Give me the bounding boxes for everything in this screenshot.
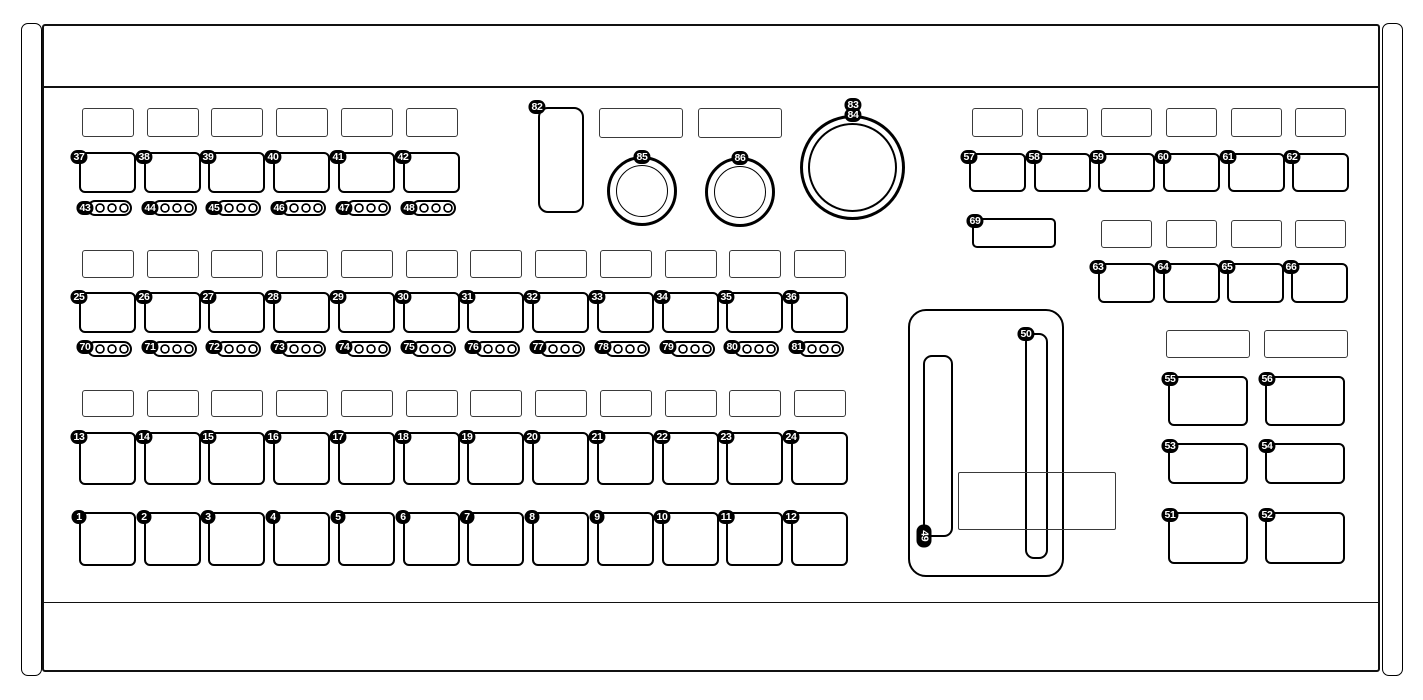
- top-edge-divider: [44, 86, 1378, 88]
- label-window: [470, 390, 522, 417]
- led-indicator-72: [216, 341, 261, 357]
- callout-badge-54: 54: [1258, 439, 1275, 453]
- led-indicator-75: [411, 341, 456, 357]
- bottom-edge-divider: [44, 602, 1378, 603]
- callout-badge-75: 75: [400, 340, 417, 354]
- pad-24: [791, 432, 848, 485]
- button-61: [1228, 153, 1285, 192]
- button-54: [1265, 443, 1345, 484]
- callout-badge-60: 60: [1154, 150, 1171, 164]
- callout-badge-86: 86: [731, 151, 748, 165]
- jog-wheel-83-84: [800, 115, 905, 220]
- led-indicator-43: [87, 200, 132, 216]
- pad-21: [597, 432, 654, 485]
- pad-12: [791, 512, 848, 566]
- callout-badge-15: 15: [199, 430, 216, 444]
- label-window: [1231, 108, 1282, 137]
- label-window: [729, 390, 781, 417]
- button-40: [273, 152, 330, 193]
- callout-badge-84: 84: [844, 108, 861, 122]
- pad-15: [208, 432, 265, 485]
- button-57: [969, 153, 1026, 192]
- callout-badge-7: 7: [460, 510, 475, 524]
- callout-badge-70: 70: [76, 340, 93, 354]
- callout-badge-1: 1: [72, 510, 87, 524]
- button-30: [403, 292, 460, 333]
- button-39: [208, 152, 265, 193]
- label-window: [535, 250, 587, 278]
- label-window: [972, 108, 1023, 137]
- button-41: [338, 152, 395, 193]
- callout-badge-57: 57: [960, 150, 977, 164]
- callout-badge-11: 11: [718, 510, 735, 524]
- callout-badge-50: 50: [1017, 327, 1034, 341]
- button-64: [1163, 263, 1220, 303]
- button-26: [144, 292, 201, 333]
- pad-1: [79, 512, 136, 566]
- callout-badge-31: 31: [458, 290, 475, 304]
- button-65: [1227, 263, 1284, 303]
- callout-badge-28: 28: [264, 290, 281, 304]
- pad-23: [726, 432, 783, 485]
- button-59: [1098, 153, 1155, 192]
- button-25: [79, 292, 136, 333]
- label-window: [794, 250, 846, 278]
- led-indicator-78: [605, 341, 650, 357]
- pad-9: [597, 512, 654, 566]
- callout-badge-58: 58: [1025, 150, 1042, 164]
- label-window: [1295, 108, 1346, 137]
- button-32: [532, 292, 589, 333]
- label-window: [211, 390, 263, 417]
- label-window: [1295, 220, 1346, 248]
- callout-badge-74: 74: [335, 340, 352, 354]
- callout-badge-72: 72: [205, 340, 222, 354]
- callout-badge-25: 25: [70, 290, 87, 304]
- callout-badge-80: 80: [723, 340, 740, 354]
- callout-badge-4: 4: [266, 510, 281, 524]
- label-window: [82, 108, 134, 137]
- callout-badge-9: 9: [590, 510, 605, 524]
- callout-badge-49: 49: [917, 525, 932, 548]
- label-window: [1101, 220, 1152, 248]
- button-60: [1163, 153, 1220, 192]
- callout-badge-65: 65: [1218, 260, 1235, 274]
- button-66: [1291, 263, 1348, 303]
- label-window: [147, 390, 199, 417]
- pad-19: [467, 432, 524, 485]
- callout-badge-62: 62: [1283, 150, 1300, 164]
- button-69: [972, 218, 1056, 248]
- label-window: [276, 390, 328, 417]
- callout-badge-82: 82: [528, 100, 545, 114]
- callout-badge-64: 64: [1154, 260, 1171, 274]
- led-indicator-44: [152, 200, 197, 216]
- label-window: [341, 390, 393, 417]
- label-window: [276, 250, 328, 278]
- label-window: [82, 390, 134, 417]
- button-27: [208, 292, 265, 333]
- callout-badge-53: 53: [1161, 439, 1178, 453]
- callout-badge-44: 44: [141, 201, 158, 215]
- button-35: [726, 292, 783, 333]
- callout-badge-56: 56: [1258, 372, 1275, 386]
- display-window: [599, 108, 683, 138]
- callout-badge-47: 47: [335, 201, 352, 215]
- pad-20: [532, 432, 589, 485]
- button-36: [791, 292, 848, 333]
- fader-overlay-window: [958, 472, 1116, 530]
- callout-badge-63: 63: [1089, 260, 1106, 274]
- led-indicator-47: [346, 200, 391, 216]
- led-indicator-80: [734, 341, 779, 357]
- led-indicator-73: [281, 341, 326, 357]
- callout-badge-10: 10: [653, 510, 670, 524]
- diagram-stage: 37 38 39 40 41 42 43 44 45 46 47 48 82 8…: [0, 0, 1423, 700]
- callout-badge-42: 42: [394, 150, 411, 164]
- callout-badge-22: 22: [653, 430, 670, 444]
- callout-badge-21: 21: [588, 430, 605, 444]
- button-58: [1034, 153, 1091, 192]
- callout-badge-12: 12: [782, 510, 799, 524]
- callout-badge-33: 33: [588, 290, 605, 304]
- callout-badge-30: 30: [394, 290, 411, 304]
- knob-86: [705, 157, 775, 227]
- button-34: [662, 292, 719, 333]
- pad-2: [144, 512, 201, 566]
- label-window: [1264, 330, 1348, 358]
- led-indicator-71: [152, 341, 197, 357]
- callout-badge-85: 85: [633, 150, 650, 164]
- pad-5: [338, 512, 395, 566]
- label-window: [665, 250, 717, 278]
- button-63: [1098, 263, 1155, 303]
- led-indicator-77: [540, 341, 585, 357]
- fader-slot-49: [923, 355, 953, 537]
- callout-badge-79: 79: [659, 340, 676, 354]
- callout-badge-69: 69: [966, 214, 983, 228]
- callout-badge-76: 76: [464, 340, 481, 354]
- pad-14: [144, 432, 201, 485]
- button-56: [1265, 376, 1345, 426]
- callout-badge-48: 48: [400, 201, 417, 215]
- callout-badge-59: 59: [1089, 150, 1106, 164]
- label-window: [147, 108, 199, 137]
- label-window: [341, 250, 393, 278]
- button-29: [338, 292, 395, 333]
- callout-badge-73: 73: [270, 340, 287, 354]
- button-33: [597, 292, 654, 333]
- label-window: [406, 390, 458, 417]
- button-55: [1168, 376, 1248, 426]
- button-62: [1292, 153, 1349, 192]
- callout-badge-23: 23: [717, 430, 734, 444]
- pad-7: [467, 512, 524, 566]
- callout-badge-55: 55: [1161, 372, 1178, 386]
- label-window: [1101, 108, 1152, 137]
- chassis-right-cap: [1382, 23, 1403, 676]
- led-indicator-48: [411, 200, 456, 216]
- callout-badge-61: 61: [1219, 150, 1236, 164]
- touch-strip-82: [538, 107, 584, 213]
- led-indicator-76: [475, 341, 520, 357]
- led-indicator-45: [216, 200, 261, 216]
- label-window: [147, 250, 199, 278]
- callout-badge-36: 36: [782, 290, 799, 304]
- label-window: [794, 390, 846, 417]
- callout-badge-81: 81: [788, 340, 805, 354]
- button-52: [1265, 512, 1345, 564]
- callout-badge-17: 17: [329, 430, 346, 444]
- label-window: [1166, 220, 1217, 248]
- callout-badge-46: 46: [270, 201, 287, 215]
- callout-badge-5: 5: [331, 510, 346, 524]
- callout-badge-2: 2: [137, 510, 152, 524]
- led-indicator-79: [670, 341, 715, 357]
- button-53: [1168, 443, 1248, 484]
- callout-badge-39: 39: [199, 150, 216, 164]
- label-window: [729, 250, 781, 278]
- callout-badge-27: 27: [199, 290, 216, 304]
- pad-6: [403, 512, 460, 566]
- led-indicator-74: [346, 341, 391, 357]
- pad-4: [273, 512, 330, 566]
- button-37: [79, 152, 136, 193]
- callout-badge-52: 52: [1258, 508, 1275, 522]
- label-window: [1231, 220, 1282, 248]
- callout-badge-78: 78: [594, 340, 611, 354]
- callout-badge-13: 13: [70, 430, 87, 444]
- label-window: [535, 390, 587, 417]
- label-window: [276, 108, 328, 137]
- label-window: [1166, 108, 1217, 137]
- callout-badge-71: 71: [141, 340, 158, 354]
- led-indicator-46: [281, 200, 326, 216]
- label-window: [470, 250, 522, 278]
- label-window: [600, 250, 652, 278]
- pad-8: [532, 512, 589, 566]
- button-42: [403, 152, 460, 193]
- label-window: [665, 390, 717, 417]
- pad-10: [662, 512, 719, 566]
- label-window: [406, 250, 458, 278]
- led-indicator-81: [799, 341, 844, 357]
- label-window: [211, 250, 263, 278]
- pad-13: [79, 432, 136, 485]
- callout-badge-24: 24: [782, 430, 799, 444]
- label-window: [1037, 108, 1088, 137]
- callout-badge-18: 18: [394, 430, 411, 444]
- callout-badge-35: 35: [717, 290, 734, 304]
- callout-badge-40: 40: [264, 150, 281, 164]
- callout-badge-38: 38: [135, 150, 152, 164]
- pad-11: [726, 512, 783, 566]
- callout-badge-41: 41: [329, 150, 346, 164]
- button-31: [467, 292, 524, 333]
- callout-badge-26: 26: [135, 290, 152, 304]
- label-window: [1166, 330, 1250, 358]
- chassis-left-cap: [21, 23, 42, 676]
- callout-badge-20: 20: [523, 430, 540, 444]
- pad-17: [338, 432, 395, 485]
- callout-badge-45: 45: [205, 201, 222, 215]
- button-38: [144, 152, 201, 193]
- label-window: [82, 250, 134, 278]
- callout-badge-8: 8: [525, 510, 540, 524]
- label-window: [341, 108, 393, 137]
- callout-badge-14: 14: [135, 430, 152, 444]
- callout-badge-32: 32: [523, 290, 540, 304]
- callout-badge-34: 34: [653, 290, 670, 304]
- callout-badge-77: 77: [529, 340, 546, 354]
- led-indicator-70: [87, 341, 132, 357]
- pad-16: [273, 432, 330, 485]
- display-window: [698, 108, 782, 138]
- button-28: [273, 292, 330, 333]
- knob-85: [607, 156, 677, 226]
- callout-badge-43: 43: [76, 201, 93, 215]
- pad-22: [662, 432, 719, 485]
- callout-badge-3: 3: [201, 510, 216, 524]
- label-window: [211, 108, 263, 137]
- callout-badge-66: 66: [1282, 260, 1299, 274]
- callout-badge-51: 51: [1161, 508, 1178, 522]
- callout-badge-6: 6: [396, 510, 411, 524]
- callout-badge-37: 37: [70, 150, 87, 164]
- pad-18: [403, 432, 460, 485]
- callout-badge-16: 16: [264, 430, 281, 444]
- button-51: [1168, 512, 1248, 564]
- pad-3: [208, 512, 265, 566]
- callout-badge-29: 29: [329, 290, 346, 304]
- callout-badge-19: 19: [458, 430, 475, 444]
- label-window: [406, 108, 458, 137]
- label-window: [600, 390, 652, 417]
